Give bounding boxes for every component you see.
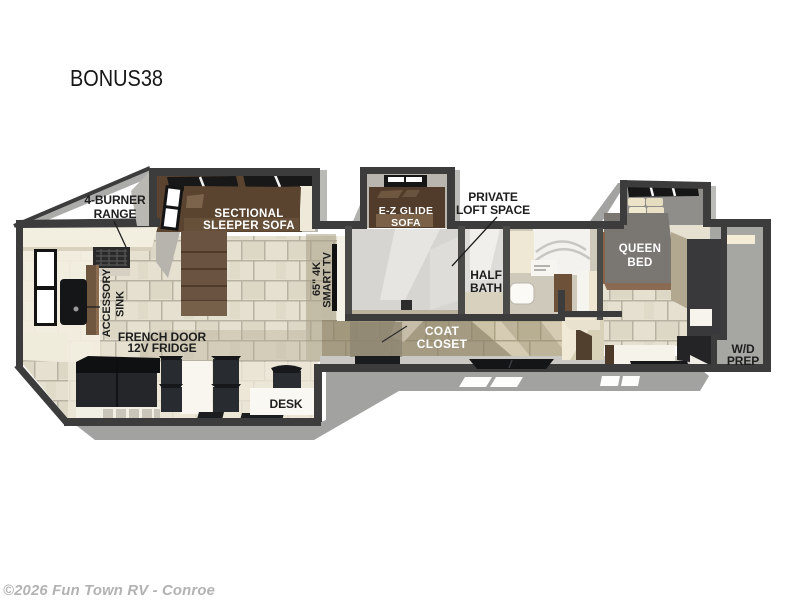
svg-text:SOFA: SOFA (391, 217, 421, 229)
svg-text:©2026 Fun Town RV - Conroe: ©2026 Fun Town RV - Conroe (3, 583, 215, 599)
svg-text:12V FRIDGE: 12V FRIDGE (127, 341, 196, 355)
svg-text:PREP: PREP (727, 354, 759, 368)
svg-text:SINK: SINK (114, 291, 126, 317)
svg-text:RANGE: RANGE (94, 207, 137, 221)
svg-text:SECTIONAL: SECTIONAL (214, 208, 283, 220)
svg-text:ACCESSORY: ACCESSORY (101, 268, 113, 337)
svg-text:BATH: BATH (470, 281, 502, 295)
svg-text:HALF: HALF (470, 268, 502, 282)
svg-text:COAT: COAT (425, 324, 460, 338)
svg-text:SLEEPER SOFA: SLEEPER SOFA (203, 220, 295, 232)
svg-text:LOFT SPACE: LOFT SPACE (456, 203, 530, 217)
svg-text:DESK: DESK (270, 397, 303, 411)
svg-text:BED: BED (627, 257, 652, 269)
svg-text:PRIVATE: PRIVATE (468, 190, 518, 204)
svg-text:CLOSET: CLOSET (417, 337, 468, 351)
svg-text:BONUS38: BONUS38 (70, 65, 163, 91)
svg-text:SMART TV: SMART TV (321, 252, 333, 308)
svg-text:QUEEN: QUEEN (619, 243, 661, 255)
svg-text:4-BURNER: 4-BURNER (84, 193, 146, 207)
svg-text:E-Z GLIDE: E-Z GLIDE (379, 205, 434, 217)
